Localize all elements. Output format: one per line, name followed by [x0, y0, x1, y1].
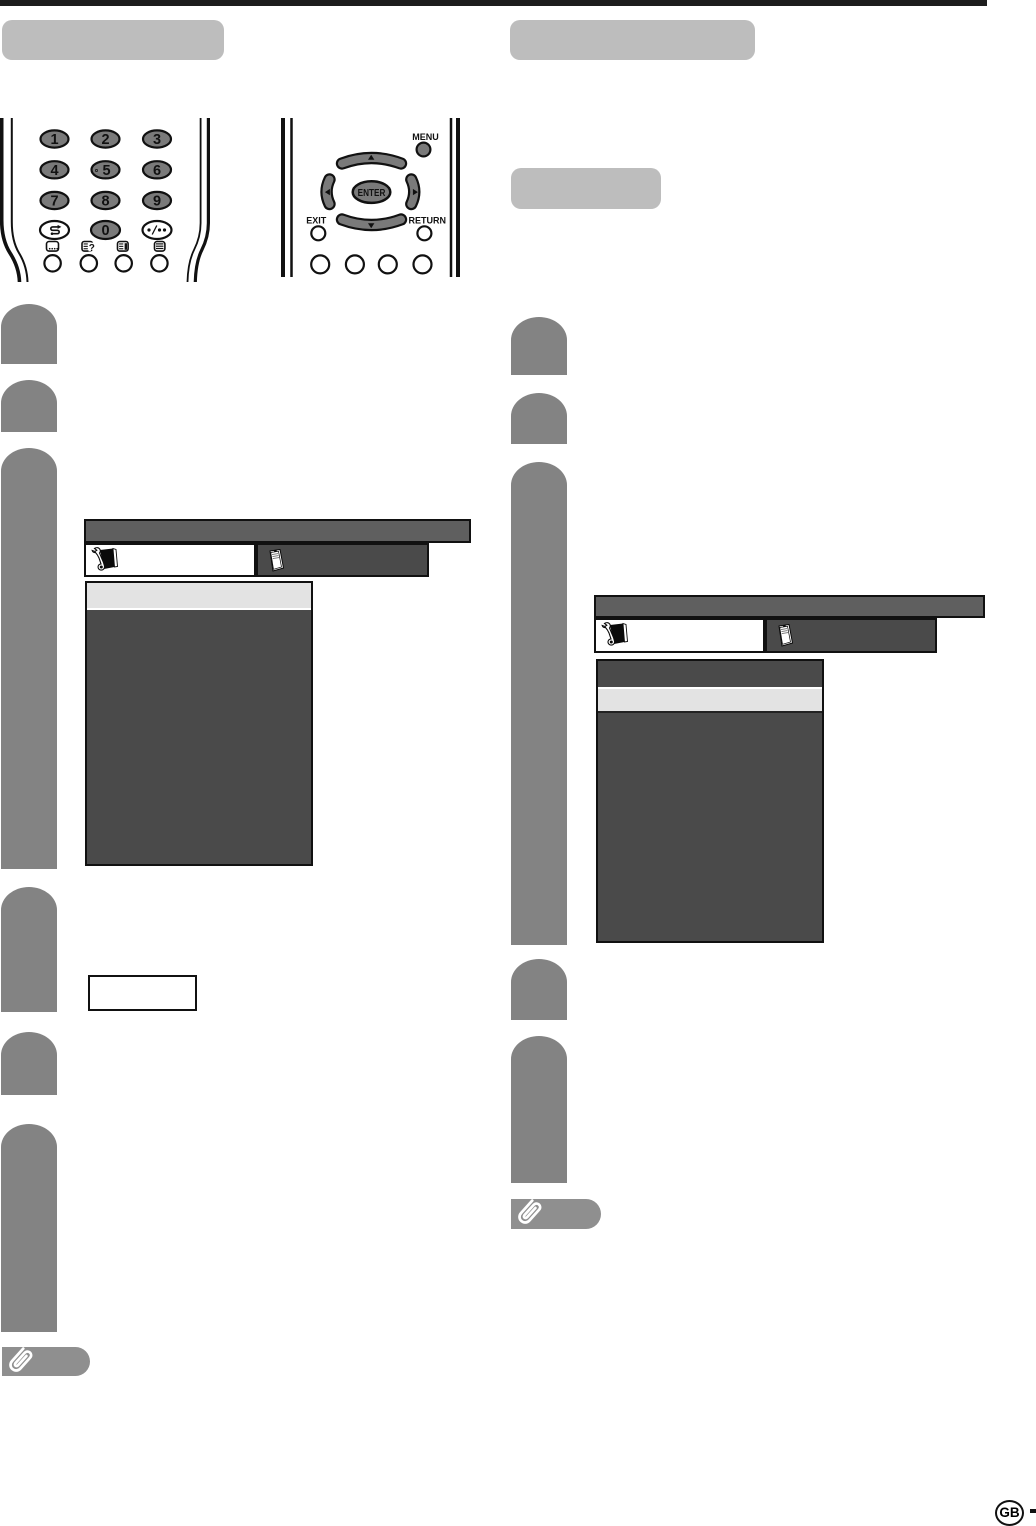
svg-text:MENU: MENU: [412, 132, 439, 142]
svg-text:2: 2: [101, 132, 109, 148]
svg-text:3: 3: [153, 132, 161, 148]
svg-text:0: 0: [101, 223, 109, 239]
svg-text:9: 9: [153, 194, 161, 210]
svg-text:?: ?: [89, 243, 95, 254]
svg-text:4: 4: [50, 163, 58, 179]
svg-text:ENTER: ENTER: [358, 186, 386, 198]
svg-text:EXIT: EXIT: [306, 216, 327, 226]
svg-text:1: 1: [50, 132, 58, 148]
svg-text:RETURN: RETURN: [409, 216, 447, 226]
svg-text:6: 6: [153, 163, 161, 179]
svg-text:8: 8: [101, 194, 109, 210]
svg-text:7: 7: [50, 194, 58, 210]
svg-text:5: 5: [102, 163, 110, 179]
